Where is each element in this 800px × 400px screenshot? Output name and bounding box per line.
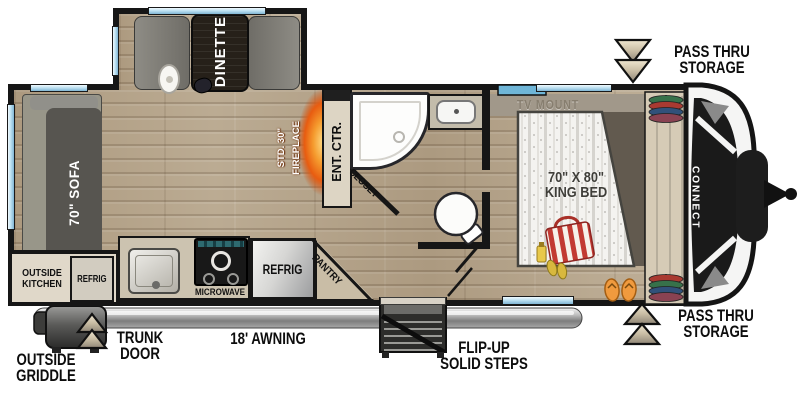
toilet-icon [435,193,484,245]
outside-refrig-label-wrap: REFRIG [70,256,114,302]
outside-kitchen-label: OUTSIDE KITCHEN [17,268,66,290]
pass-thru-bottom-arrow-icon [625,304,659,344]
fireplace-label2-wrap: FIREPLACE [288,98,304,198]
entry-door-swing [448,268,472,296]
hanging-clothes-bottom-icon [649,274,683,302]
window-bedroom-top [536,84,612,92]
fireplace-label-line1: STD. 30" [276,128,287,167]
faucet-icon [152,281,160,289]
outside-griddle-label: OUTSIDEGRIDDLE [2,352,90,384]
brand-label: CONNECT [690,166,701,229]
awning-label: 18' AWNING [206,331,330,347]
floorplan-scene: DINETTE 70" SOFA OUTSIDE KITCHEN REFRIG … [0,0,800,400]
outside-refrig-label: REFRIG [77,274,106,285]
trunk-door-label: TRUNKDOOR [98,330,182,362]
guitar-soundhole [166,76,173,83]
tv-mount-label: TV MOUNT [512,98,583,112]
window-rear-side [7,104,15,230]
pass-thru-storage-bottom-label: PASS THRUSTORAGE [656,308,776,340]
shower-inner-ring [359,101,421,161]
dinette-label-wrap: DINETTE [196,16,244,88]
window-dinette-slide-side [112,26,119,76]
burner-small-left [203,273,215,285]
bathroom-vanity [428,94,484,130]
kitchen-sink [128,248,180,294]
flip-up-steps-label: FLIP-UPSOLID STEPS [418,340,550,372]
vanity-faucet-icon [454,109,459,114]
guitar-on-bench [158,64,180,94]
burner-large [211,251,231,271]
fireplace-label1-wrap: STD. 30" [274,100,288,196]
refrig-label: REFRIG [263,262,303,277]
fireplace-label-line2: FIREPLACE [291,121,302,175]
king-bed-label: 70" X 80" KING BED [534,170,619,200]
dinette-label: DINETTE [212,16,229,87]
refrig-label-wrap: REFRIG [250,238,316,300]
sofa-label: 70" SOFA [67,160,82,226]
entry-door-threshold [380,297,446,305]
dinette-bench-right [248,16,300,90]
cooktop [194,238,248,286]
ent-ctr-label-wrap: ENT. CTR. [322,99,352,205]
floor-flip-flops-icon [604,278,637,301]
window-bedroom-bottom [502,296,574,305]
hanging-clothes-top-icon [649,95,683,123]
propane-and-hitch [736,150,797,242]
pass-thru-storage-top-label: PASS THRUSTORAGE [648,44,776,76]
shower-drain-icon [393,131,405,143]
cooktop-knob-strip [198,241,244,247]
burner-small-right [227,273,239,285]
window-rear-top [30,84,88,92]
ent-ctr-label: ENT. CTR. [330,122,344,182]
sofa-label-wrap: 70" SOFA [52,115,96,270]
window-dinette-slide-top [148,7,266,15]
pass-thru-top-arrow-icon [616,40,650,82]
awning-tube [34,308,582,328]
brand-label-wrap: CONNECT [688,148,702,248]
microwave-label: MICROWAVE [186,287,254,298]
